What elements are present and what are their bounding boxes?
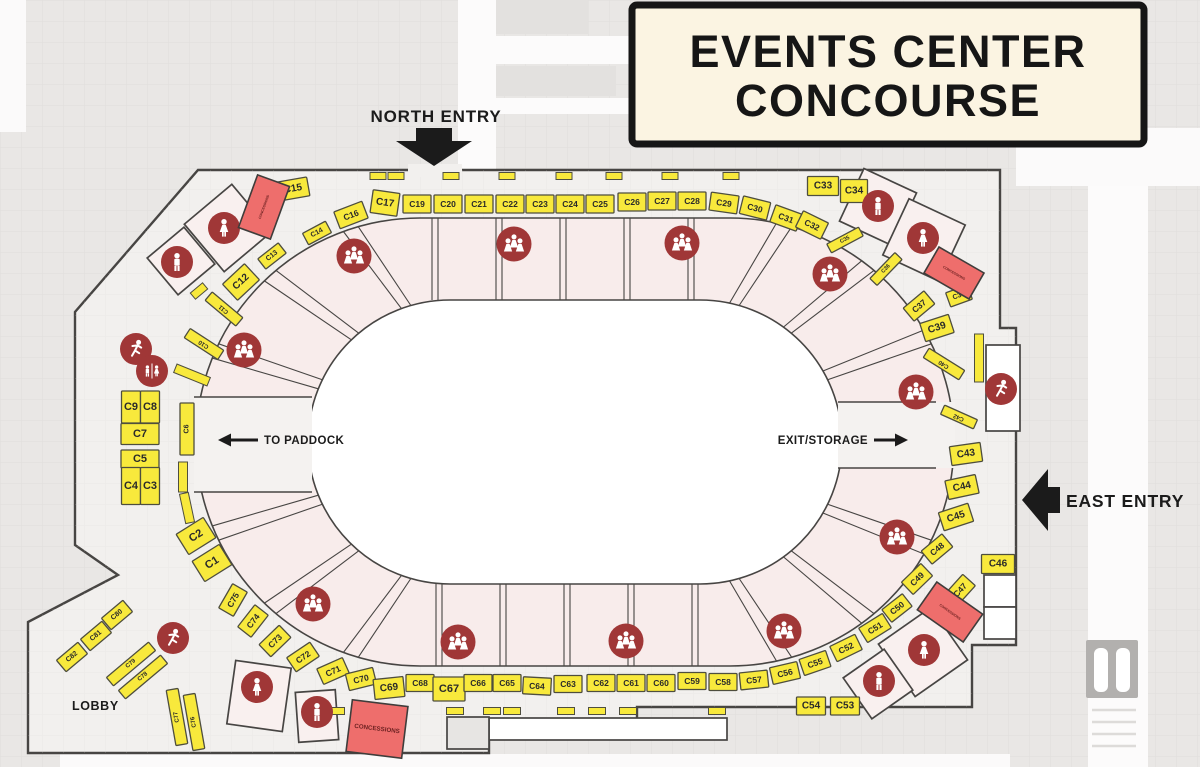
booth-label: C63	[560, 679, 576, 689]
group-icon	[767, 614, 802, 649]
booth-C64: C64	[523, 677, 552, 695]
block-north-2	[496, 66, 616, 96]
booth-label: C69	[379, 682, 399, 695]
group-icon	[296, 587, 331, 622]
woman-icon	[908, 634, 940, 666]
booth-strip	[606, 173, 622, 180]
group-icon	[337, 239, 372, 274]
booth-label: C8	[143, 401, 157, 413]
booth-C25: C25	[586, 195, 614, 213]
events-center-map: C19C20C21C22C23C24C25C26C27C28C29C30C31C…	[0, 0, 1200, 767]
booth-C27: C27	[648, 192, 676, 210]
booth-label: C54	[802, 701, 821, 712]
booth-C6: C6	[180, 403, 194, 455]
booth-label: C27	[654, 196, 670, 206]
booth-C22: C22	[496, 195, 524, 213]
man-icon	[863, 665, 895, 697]
booth-C34: C34	[841, 180, 868, 203]
booth-label: C53	[836, 701, 855, 712]
booth-C46: C46	[982, 555, 1015, 574]
booth-label: C64	[529, 681, 545, 692]
booth-C57: C57	[739, 670, 769, 690]
booth-label: C68	[412, 678, 428, 688]
booth-label: C20	[440, 199, 456, 209]
booth-C17: C17	[370, 190, 400, 217]
booth-strip	[558, 708, 575, 715]
booth-C61: C61	[617, 675, 645, 692]
booth-strip	[484, 708, 501, 715]
booth-label: C67	[439, 683, 459, 695]
booth-label: C9	[124, 401, 138, 413]
group-icon	[880, 520, 915, 555]
booth-strip	[620, 708, 637, 715]
booth-strip	[975, 334, 984, 382]
booth-label: C33	[814, 181, 833, 192]
booth-C66: C66	[464, 675, 492, 692]
booth-C28: C28	[678, 192, 706, 210]
group-icon	[813, 257, 848, 292]
booth-strip	[388, 173, 404, 180]
booth-label: C57	[746, 674, 763, 686]
booth-C21: C21	[465, 195, 493, 213]
title-box: EVENTS CENTER CONCOURSE	[632, 5, 1144, 144]
woman-icon	[907, 222, 939, 254]
group-icon	[497, 227, 532, 262]
booth-label: C19	[409, 199, 425, 209]
corridor-south	[60, 754, 1010, 767]
booth-C3: C3	[141, 468, 160, 505]
title-line2: CONCOURSE	[735, 75, 1041, 126]
booth-strip	[447, 708, 464, 715]
booth-C26: C26	[618, 193, 646, 211]
booth-C19: C19	[403, 195, 431, 213]
corridor-north-horizontal	[458, 36, 636, 64]
room	[984, 575, 1016, 607]
booth-strip	[589, 708, 606, 715]
booth-label: C6	[184, 424, 191, 433]
concessions-stand: CONCESSIONS	[346, 700, 408, 758]
title-line1: EVENTS CENTER	[689, 26, 1086, 77]
booth-strip	[709, 708, 726, 715]
woman-icon	[208, 212, 240, 244]
arena-field	[308, 300, 842, 584]
booth-label: C46	[989, 559, 1008, 570]
booth-strip	[662, 173, 678, 180]
room	[489, 718, 727, 740]
booth-strip	[504, 708, 521, 715]
man-icon	[301, 696, 333, 728]
booth-strip	[179, 462, 188, 492]
booth-label: C34	[845, 186, 864, 197]
booth-label: C4	[124, 480, 139, 492]
booth-label: C26	[624, 197, 640, 207]
booth-C33: C33	[808, 177, 839, 196]
booth-label: C62	[593, 678, 609, 688]
booth-C5: C5	[121, 450, 159, 468]
booth-C63: C63	[554, 676, 582, 693]
booth-C62: C62	[587, 675, 615, 692]
to-paddock-label: TO PADDOCK	[264, 435, 345, 447]
booth-label: C61	[623, 678, 639, 688]
east-entry-label: EAST ENTRY	[1066, 491, 1184, 511]
group-icon	[227, 333, 262, 368]
elevator-icon	[1086, 640, 1138, 698]
booth-label: C22	[502, 199, 518, 209]
booth-C65: C65	[493, 675, 521, 692]
corridor-west	[0, 0, 26, 132]
booth-C68: C68	[406, 675, 434, 692]
booth-C58: C58	[709, 674, 737, 691]
booth-label: C24	[562, 199, 578, 209]
group-icon	[609, 624, 644, 659]
booth-C4: C4	[122, 468, 141, 505]
booth-label: C28	[684, 196, 700, 206]
booth-strip	[370, 173, 386, 180]
man-icon	[862, 190, 894, 222]
booth-C54: C54	[797, 697, 826, 715]
booth-C53: C53	[831, 697, 860, 715]
woman-icon	[241, 671, 273, 703]
booth-C43: C43	[949, 442, 982, 465]
booth-C24: C24	[556, 195, 584, 213]
booth-label: C21	[471, 199, 487, 209]
booth-label: C3	[143, 480, 157, 492]
booth-label: C58	[715, 677, 731, 687]
booth-C67: C67	[433, 677, 465, 701]
booth-strip	[556, 173, 572, 180]
booth-C8: C8	[141, 391, 160, 423]
booth-label: C65	[499, 678, 515, 688]
booth-C20: C20	[434, 195, 462, 213]
runner-icon	[985, 373, 1017, 405]
booth-label: C5	[133, 453, 147, 465]
runner-icon	[157, 622, 189, 654]
booth-C7: C7	[121, 424, 159, 445]
block-north-1	[496, 0, 588, 34]
booth-C60: C60	[647, 675, 675, 692]
group-icon	[899, 375, 934, 410]
booth-C23: C23	[526, 195, 554, 213]
lobby-label: LOBBY	[72, 699, 119, 713]
booth-label: C66	[470, 678, 486, 688]
group-icon	[441, 625, 476, 660]
booth-label: C7	[133, 428, 147, 440]
group-icon	[665, 226, 700, 261]
booth-label: C23	[532, 199, 548, 209]
booth-strip	[723, 173, 739, 180]
map-svg: C19C20C21C22C23C24C25C26C27C28C29C30C31C…	[0, 0, 1200, 767]
booth-C59: C59	[678, 673, 706, 690]
booth-C69: C69	[373, 676, 405, 699]
booth-label: C60	[653, 678, 669, 688]
north-entry-label: NORTH ENTRY	[371, 107, 502, 126]
man-icon	[161, 246, 193, 278]
booth-strip	[443, 173, 459, 180]
room	[447, 717, 489, 749]
booth-strip	[499, 173, 515, 180]
booth-label: C25	[592, 199, 608, 209]
booth-label: C59	[684, 676, 700, 686]
booth-C9: C9	[122, 391, 141, 423]
room	[984, 607, 1016, 639]
wc-icon	[136, 355, 168, 387]
exit-storage-label: EXIT/STORAGE	[778, 435, 868, 447]
booth-C29: C29	[709, 192, 739, 214]
